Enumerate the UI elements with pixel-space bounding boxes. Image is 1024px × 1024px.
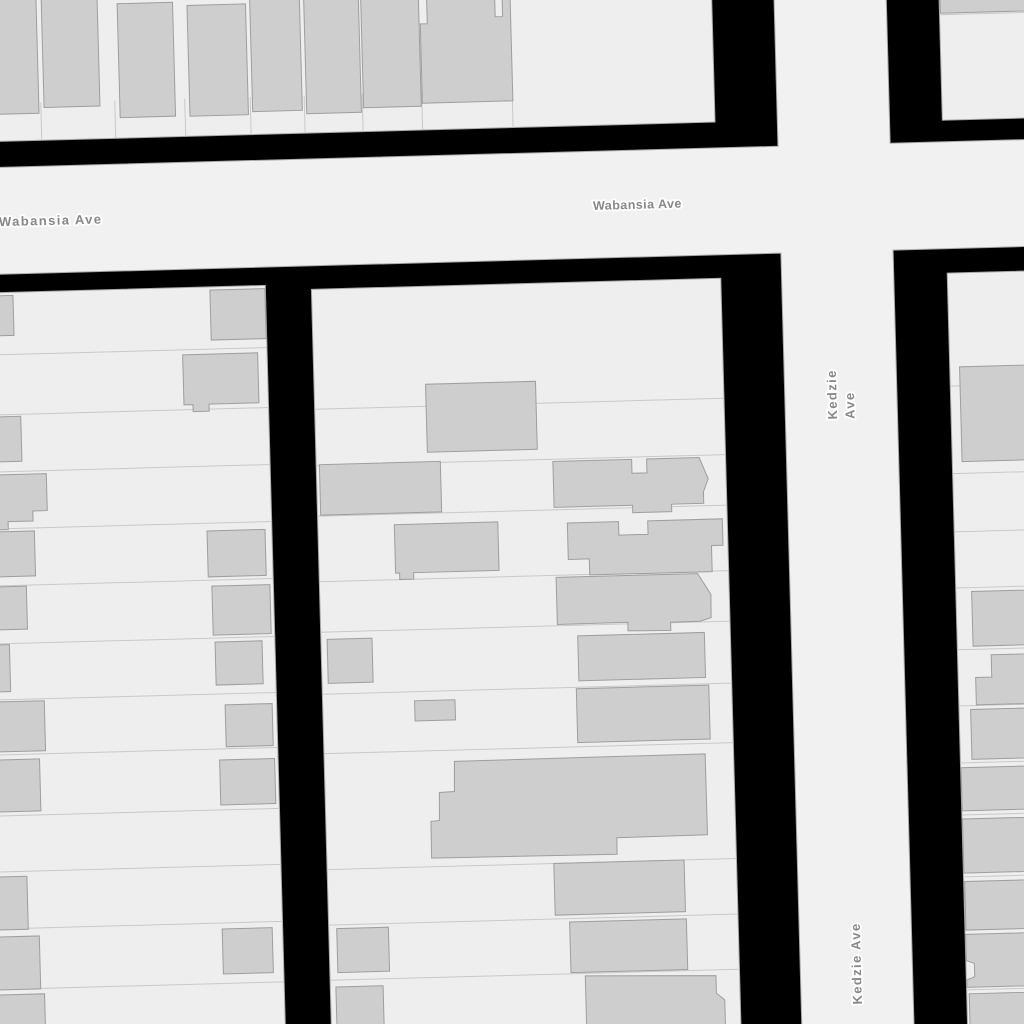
svg-text:Wabansia Ave: Wabansia Ave bbox=[593, 197, 682, 213]
svg-text:Kedzie Ave: Kedzie Ave bbox=[848, 922, 865, 1004]
svg-text:Kedzie: Kedzie bbox=[824, 369, 840, 420]
svg-text:Wabansia Ave: Wabansia Ave bbox=[0, 211, 103, 229]
svg-text:Ave: Ave bbox=[842, 391, 858, 419]
